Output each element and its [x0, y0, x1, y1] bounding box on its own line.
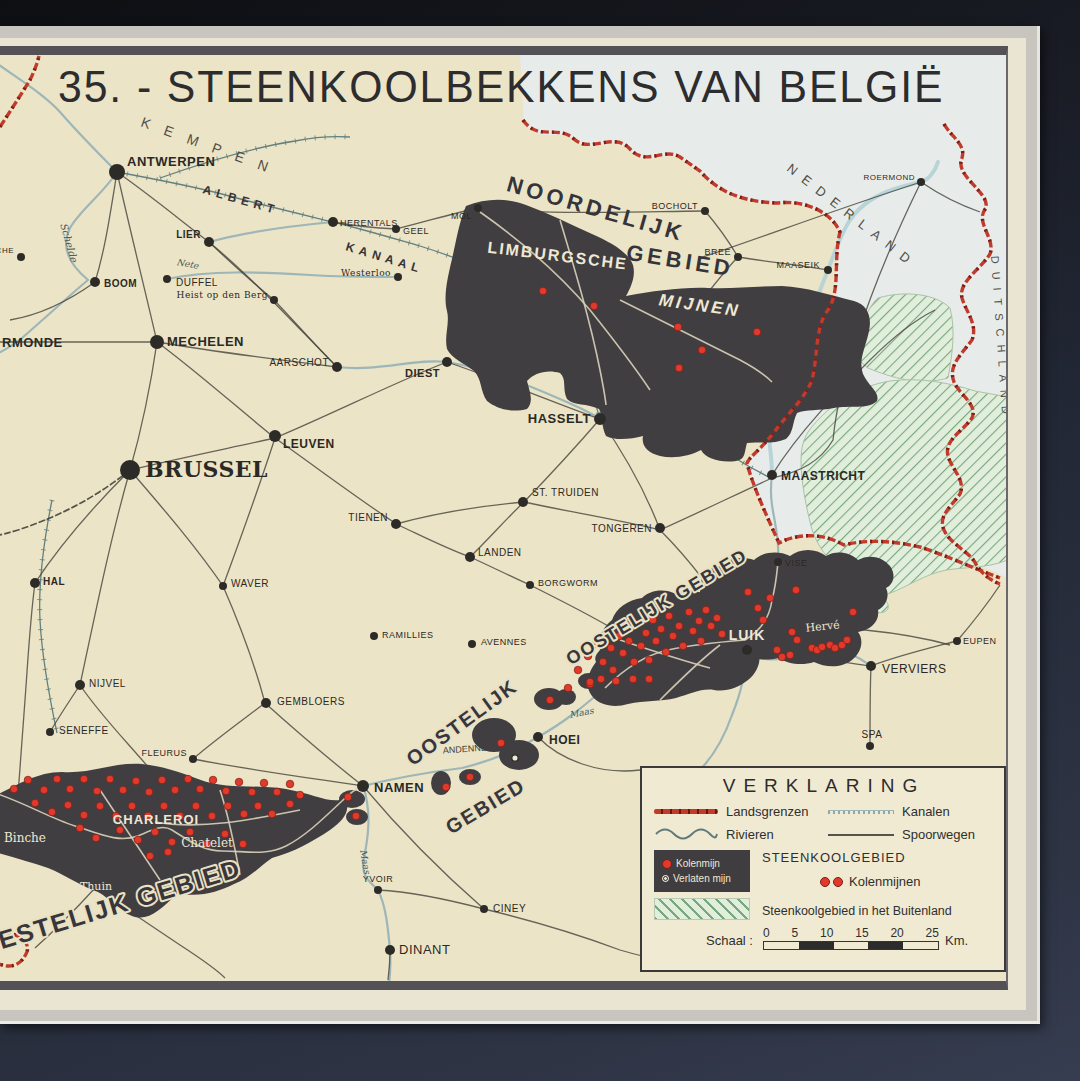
framed-map-photo: ANTWERPENCHELIERBOOMDUFFELHeist op den B…: [0, 0, 1080, 1081]
frame-highlight: [0, 26, 1040, 1024]
